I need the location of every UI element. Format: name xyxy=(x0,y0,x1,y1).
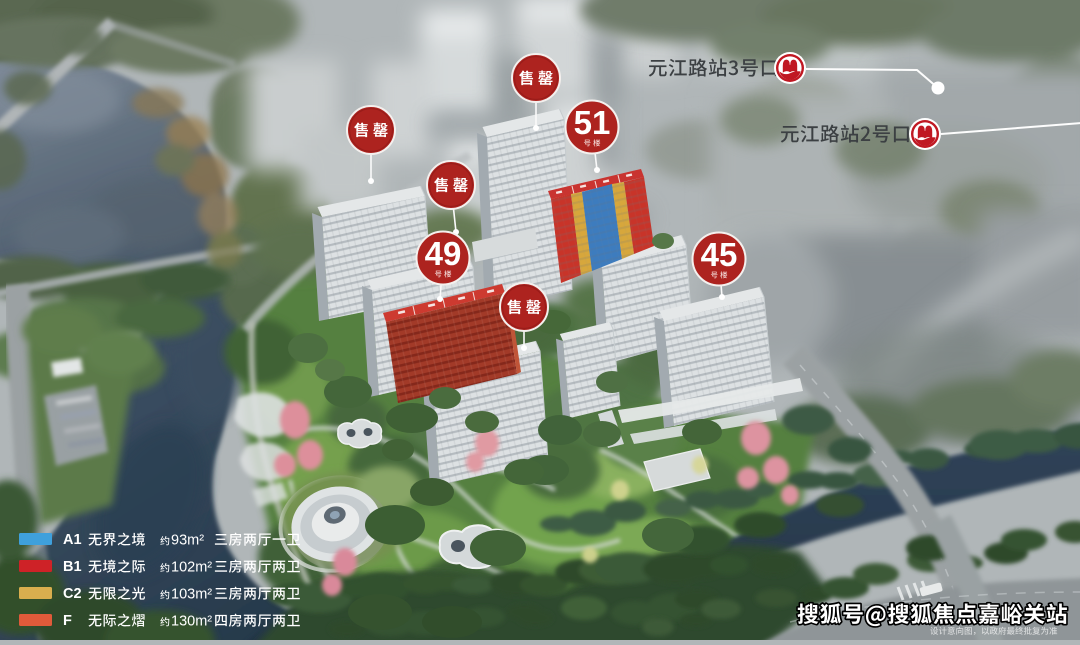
svg-text:130m²: 130m² xyxy=(171,614,212,630)
svg-text:102m²: 102m² xyxy=(171,560,212,576)
svg-text:C2: C2 xyxy=(63,586,82,602)
svg-text:51: 51 xyxy=(574,104,611,141)
svg-text:93m²: 93m² xyxy=(171,533,204,549)
svg-text:103m²: 103m² xyxy=(171,587,212,603)
svg-text:45: 45 xyxy=(701,236,738,273)
svg-text:49: 49 xyxy=(425,235,462,272)
svg-text:A1: A1 xyxy=(63,532,82,548)
svg-text:F: F xyxy=(63,613,72,629)
svg-text:B1: B1 xyxy=(63,559,82,575)
